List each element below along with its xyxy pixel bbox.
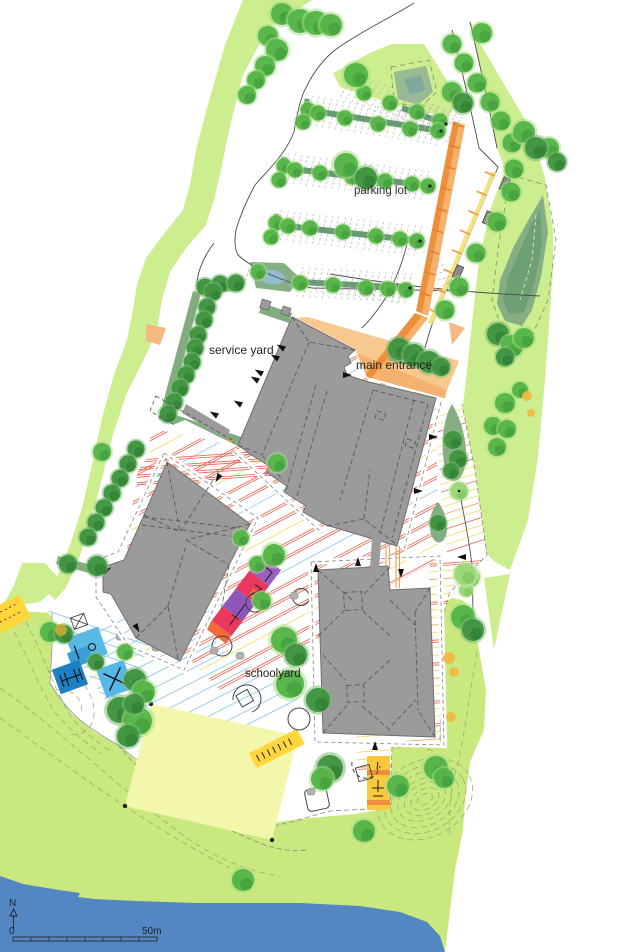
svg-text:parking lot: parking lot: [354, 185, 408, 197]
svg-text:0: 0: [9, 926, 15, 937]
svg-text:N: N: [9, 898, 16, 909]
svg-text:schoolyard: schoolyard: [245, 668, 301, 680]
svg-text:50m: 50m: [142, 926, 161, 937]
svg-text:service yard: service yard: [209, 343, 274, 357]
svg-text:main entrance: main entrance: [356, 358, 432, 372]
